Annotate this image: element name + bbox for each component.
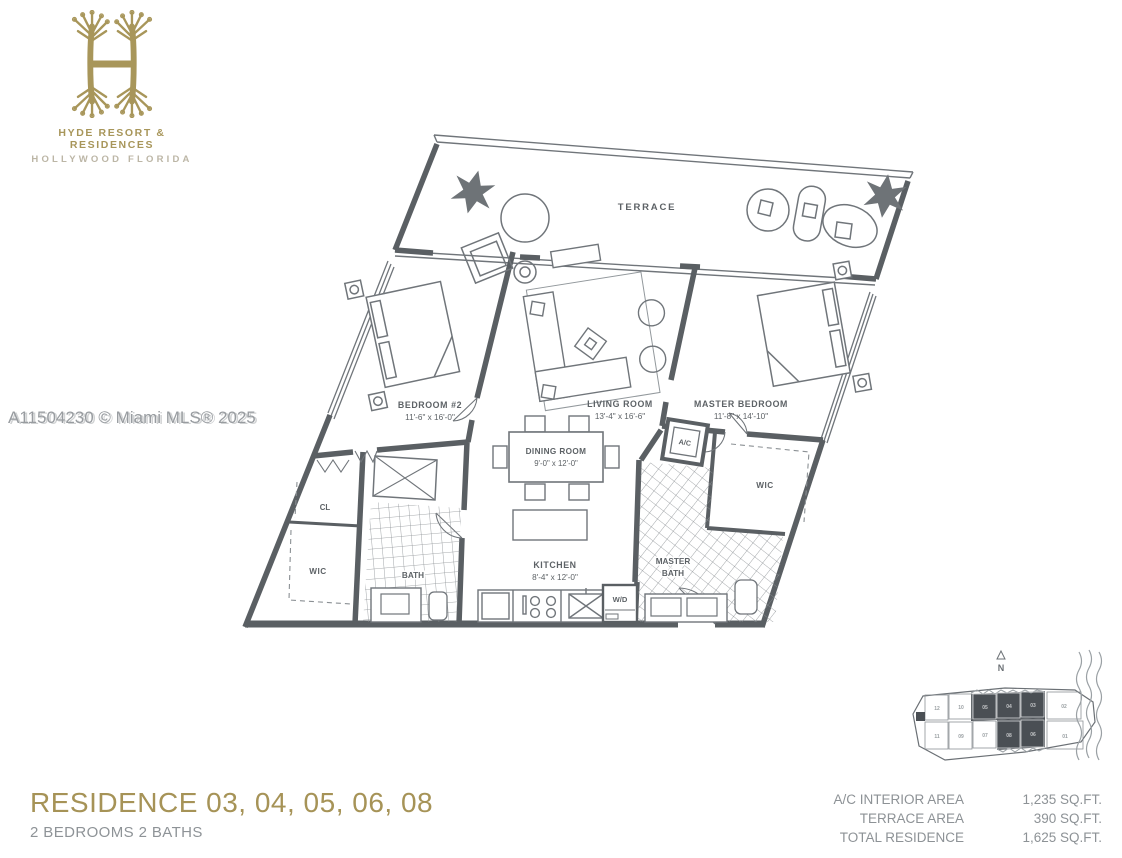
svg-text:12: 12 (934, 706, 940, 712)
kitchen-label: KITCHEN (533, 560, 576, 570)
svg-text:09: 09 (958, 734, 964, 740)
residence-title: RESIDENCE 03, 04, 05, 06, 08 (30, 787, 433, 819)
area-stats: A/C INTERIOR AREA 1,235 SQ.FT. TERRACE A… (789, 792, 1102, 845)
terrace-glass-wall (395, 251, 876, 285)
ac-label: A/C (678, 437, 692, 448)
living-label: LIVING ROOM (587, 399, 653, 409)
wic-left-label: WIC (309, 567, 326, 576)
footer-title-block: RESIDENCE 03, 04, 05, 06, 08 2 BEDROOMS … (30, 787, 433, 841)
living-dims: 13'-4" x 16'-6" (595, 412, 645, 421)
brand-location: HOLLYWOOD FLORIDA (24, 154, 200, 165)
bedroom2-dims: 11'-6" x 16'-0" (405, 413, 455, 422)
cl-label: CL (320, 503, 331, 512)
svg-text:10: 10 (958, 705, 964, 711)
wic-right-label: WIC (756, 481, 773, 490)
residence-subtitle: 2 BEDROOMS 2 BATHS (30, 824, 433, 841)
dining-furniture (493, 416, 619, 500)
floor-plan: TERRACE BEDROOM #2 11'-6" x 16'-0" LIVIN… (225, 130, 925, 650)
svg-text:04: 04 (1006, 704, 1012, 710)
terrace-label: TERRACE (618, 202, 677, 213)
stat-value: 1,625 SQ.FT. (982, 830, 1102, 845)
hall-bath-fixtures (363, 456, 461, 622)
palm-icon (448, 166, 497, 218)
brand-logo: HYDE RESORT & RESIDENCES HOLLYWOOD FLORI… (24, 10, 200, 165)
master-bath-label-1: MASTER (656, 557, 691, 566)
floorplan-sheet: HYDE RESORT & RESIDENCES HOLLYWOOD FLORI… (0, 0, 1122, 858)
stat-value: 390 SQ.FT. (982, 811, 1102, 826)
svg-text:01: 01 (1062, 734, 1068, 740)
wd-label: W/D (613, 595, 628, 604)
bath-label: BATH (402, 571, 424, 580)
svg-text:08: 08 (1006, 733, 1012, 739)
ocean-waves-icon (1072, 648, 1108, 766)
kitchen-dims: 8'-4" x 12'-0" (532, 573, 578, 582)
living-furniture (517, 236, 677, 412)
dining-label: DINING ROOM (526, 447, 587, 456)
svg-text:06: 06 (1030, 732, 1036, 738)
mls-watermark-text: A11504230 © Miami MLS® 2025 (8, 408, 256, 428)
master-label: MASTER BEDROOM (694, 399, 788, 409)
terrace-railing (434, 135, 913, 178)
master-dims: 11'-8" x 14'-10" (714, 412, 768, 421)
svg-text:11: 11 (934, 734, 940, 740)
brand-name: HYDE RESORT & RESIDENCES (24, 127, 200, 151)
stat-label: TERRACE AREA (789, 811, 964, 826)
stat-label: TOTAL RESIDENCE (789, 830, 964, 845)
stat-value: 1,235 SQ.FT. (982, 792, 1102, 807)
svg-text:03: 03 (1030, 703, 1036, 709)
dining-dims: 9'-0" x 12'-0" (534, 459, 578, 468)
stat-label: A/C INTERIOR AREA (789, 792, 964, 807)
svg-text:07: 07 (982, 733, 988, 739)
svg-text:02: 02 (1061, 704, 1067, 710)
north-arrow-icon (997, 651, 1005, 659)
master-furniture (754, 261, 871, 406)
hyde-tree-h-icon (53, 10, 171, 118)
master-bath-label-2: BATH (662, 569, 684, 578)
north-label: N (998, 663, 1005, 673)
svg-text:05: 05 (982, 705, 988, 711)
bedroom2-label: BEDROOM #2 (398, 400, 462, 410)
